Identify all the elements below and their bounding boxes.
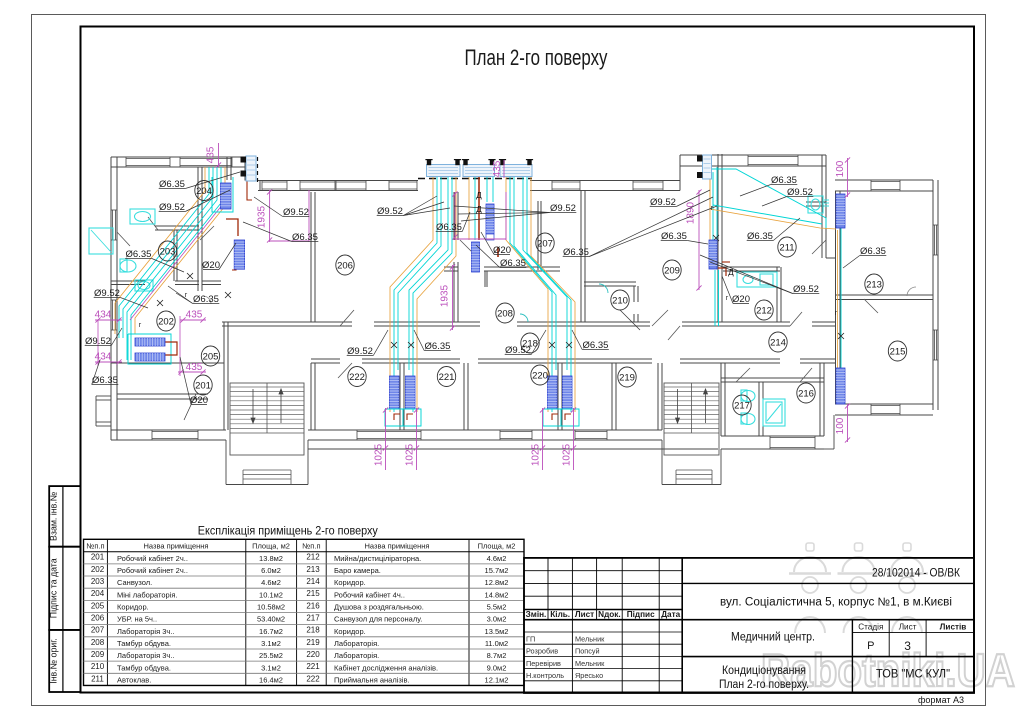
svg-text:13.8м2: 13.8м2 (259, 554, 283, 563)
svg-text:208: 208 (497, 308, 513, 319)
svg-text:Кондиціонування: Кондиціонування (722, 665, 806, 677)
svg-text:202: 202 (91, 565, 105, 574)
svg-text:Дата: Дата (661, 610, 680, 619)
svg-text:13.5м2: 13.5м2 (485, 627, 509, 636)
svg-text:Коридор.: Коридор. (117, 603, 149, 612)
svg-text:Площа, м2: Площа, м2 (252, 542, 290, 551)
svg-text:Міні лабораторія.: Міні лабораторія. (117, 590, 178, 599)
svg-text:100: 100 (835, 417, 846, 434)
svg-text:28/102014 - ОВ/ВК: 28/102014 - ОВ/ВК (872, 566, 960, 580)
svg-text:вул. Соціалістична 5, корпус: вул. Соціалістична 5, корпус №1, в м.Киє… (720, 597, 952, 609)
svg-text:Коридор.: Коридор. (334, 627, 366, 636)
svg-text:16.7м2: 16.7м2 (259, 627, 283, 636)
svg-text:434: 434 (95, 310, 112, 321)
svg-text:216: 216 (798, 388, 814, 399)
svg-text:Підпис та дата: Підпис та дата (49, 558, 59, 618)
svg-text:Д: Д (476, 191, 482, 200)
svg-text:210: 210 (612, 295, 628, 306)
svg-text:Душова з роздягальньою.: Душова з роздягальньою. (334, 603, 424, 612)
svg-text:4.6м2: 4.6м2 (261, 578, 281, 587)
svg-text:формат А3: формат А3 (918, 695, 964, 705)
svg-text:№п.п: №п.п (302, 542, 320, 551)
svg-text:3: 3 (904, 639, 911, 653)
svg-text:Н.контроль: Н.контроль (526, 671, 564, 680)
svg-text:209: 209 (91, 650, 105, 659)
svg-text:214: 214 (306, 577, 320, 586)
svg-text:Кабінет дослідження аналізів.: Кабінет дослідження аналізів. (334, 663, 438, 672)
svg-text:План 2-го поверху.: План 2-го поверху. (719, 679, 809, 691)
svg-text:Експлікація приміщень 2-го пов: Експлікація приміщень 2-го поверху (198, 524, 378, 538)
svg-text:Мийна/дистиціліраторна.: Мийна/дистиціліраторна. (334, 554, 421, 563)
svg-text:222: 222 (306, 674, 320, 683)
svg-text:Санвузол.: Санвузол. (117, 578, 152, 587)
svg-text:216: 216 (306, 601, 320, 610)
svg-text:215: 215 (306, 589, 320, 598)
svg-text:10.1м2: 10.1м2 (259, 590, 283, 599)
svg-text:ГП: ГП (526, 635, 535, 644)
svg-text:435: 435 (206, 146, 217, 163)
svg-text:Площа, м2: Площа, м2 (478, 542, 516, 551)
svg-text:207: 207 (91, 626, 105, 635)
svg-text:206: 206 (91, 614, 105, 623)
svg-text:222: 222 (349, 372, 365, 383)
svg-text:Лабораторія 3ч..: Лабораторія 3ч.. (117, 627, 175, 636)
svg-text:г: г (139, 322, 142, 329)
svg-text:9.0м2: 9.0м2 (487, 663, 507, 672)
svg-text:12.1м2: 12.1м2 (485, 676, 509, 685)
svg-text:12.8м2: 12.8м2 (485, 578, 509, 587)
svg-text:11.0м2: 11.0м2 (485, 639, 508, 648)
svg-text:Лабораторія.: Лабораторія. (334, 639, 379, 648)
svg-text:213: 213 (866, 279, 882, 290)
svg-text:План 2-го поверху: План 2-го поверху (465, 45, 608, 70)
svg-text:435: 435 (186, 310, 203, 321)
svg-text:Д: Д (476, 205, 482, 214)
svg-text:201: 201 (91, 553, 105, 562)
svg-text:Мельник: Мельник (575, 659, 605, 668)
svg-text:203: 203 (160, 246, 176, 257)
svg-text:Лабораторія 3ч..: Лабораторія 3ч.. (117, 651, 175, 660)
svg-text:15.7м2: 15.7м2 (485, 566, 509, 575)
svg-text:201: 201 (195, 380, 211, 391)
svg-text:217: 217 (306, 614, 320, 623)
svg-text:212: 212 (306, 553, 320, 562)
svg-text:211: 211 (91, 674, 104, 683)
svg-text:Стадія: Стадія (858, 623, 883, 632)
svg-text:218: 218 (306, 626, 320, 635)
svg-text:Листів: Листів (940, 623, 967, 632)
svg-text:Робочий кабінет 2ч..: Робочий кабінет 2ч.. (117, 554, 188, 563)
svg-text:Назва приміщення: Назва приміщення (365, 542, 430, 551)
svg-text:Тамбур обдува.: Тамбур обдува. (117, 663, 171, 672)
svg-text:1935: 1935 (440, 284, 451, 307)
svg-text:221: 221 (439, 372, 455, 383)
svg-text:434: 434 (95, 352, 112, 363)
svg-text:1025: 1025 (562, 443, 573, 466)
svg-text:219: 219 (619, 372, 635, 383)
svg-text:1890: 1890 (686, 201, 697, 224)
svg-text:Перевірив: Перевірив (526, 659, 561, 668)
svg-text:8.7м2: 8.7м2 (487, 651, 507, 660)
svg-text:25.5м2: 25.5м2 (259, 651, 283, 660)
svg-text:3.1м2: 3.1м2 (261, 639, 281, 648)
svg-text:Кіль.: Кіль. (550, 610, 570, 619)
svg-text:4.6м2: 4.6м2 (487, 554, 507, 563)
svg-text:Попсуй: Попсуй (575, 647, 600, 656)
svg-text:Тамбур обдува.: Тамбур обдува. (117, 639, 171, 648)
svg-text:Приймальня аналізів.: Приймальня аналізів. (334, 676, 410, 685)
svg-text:Назва приміщення: Назва приміщення (144, 542, 209, 551)
svg-text:Взам. інв.№: Взам. інв.№ (49, 492, 59, 541)
svg-text:Підпис: Підпис (627, 610, 655, 619)
svg-text:Д: Д (728, 268, 734, 277)
svg-text:204: 204 (196, 186, 212, 197)
svg-text:16.4м2: 16.4м2 (259, 676, 283, 685)
svg-text:6.0м2: 6.0м2 (261, 566, 281, 575)
svg-text:Nдок.: Nдок. (598, 610, 620, 619)
svg-text:214: 214 (770, 337, 786, 348)
svg-text:Розробив: Розробив (526, 647, 558, 656)
svg-text:г: г (835, 310, 838, 317)
svg-text:217: 217 (734, 400, 750, 411)
svg-text:207: 207 (537, 238, 553, 249)
svg-text:Лабораторія.: Лабораторія. (334, 651, 379, 660)
svg-text:Робочий кабінет 4ч..: Робочий кабінет 4ч.. (334, 590, 405, 599)
svg-text:1025: 1025 (374, 443, 385, 466)
svg-text:209: 209 (664, 265, 680, 276)
svg-text:Автоклав.: Автоклав. (117, 676, 151, 685)
svg-text:Змін.: Змін. (526, 610, 547, 619)
svg-text:220: 220 (306, 650, 320, 659)
svg-text:219: 219 (306, 638, 320, 647)
svg-text:204: 204 (91, 589, 105, 598)
svg-text:14.8м2: 14.8м2 (485, 590, 509, 599)
svg-text:Лист: Лист (899, 623, 917, 632)
svg-text:1935: 1935 (257, 205, 268, 228)
svg-text:435: 435 (186, 362, 203, 373)
svg-text:206: 206 (337, 260, 353, 271)
svg-text:100: 100 (835, 160, 846, 177)
svg-text:215: 215 (890, 346, 906, 357)
svg-text:Коридор.: Коридор. (334, 578, 366, 587)
svg-text:208: 208 (91, 638, 105, 647)
svg-text:3.0м2: 3.0м2 (487, 615, 507, 624)
svg-text:Інв.№ ориг.: Інв.№ ориг. (49, 638, 59, 684)
svg-text:Р: Р (867, 640, 874, 652)
svg-text:1025: 1025 (531, 443, 542, 466)
svg-text:210: 210 (91, 662, 105, 671)
svg-text:53.40м2: 53.40м2 (257, 615, 285, 624)
svg-text:Мельник: Мельник (575, 635, 605, 644)
svg-text:1025: 1025 (405, 443, 416, 466)
svg-text:202: 202 (158, 316, 174, 327)
svg-text:221: 221 (306, 662, 320, 671)
svg-text:Санвузол для персоналу.: Санвузол для персоналу. (334, 615, 422, 624)
svg-text:435: 435 (492, 160, 503, 177)
svg-text:218: 218 (522, 338, 538, 349)
svg-text:205: 205 (91, 601, 105, 610)
svg-text:г: г (726, 295, 729, 302)
svg-text:213: 213 (306, 565, 320, 574)
svg-text:№п.п: №п.п (86, 542, 104, 551)
svg-text:Лист: Лист (575, 610, 594, 619)
svg-text:212: 212 (756, 305, 772, 316)
svg-text:Медичний центр.: Медичний центр. (731, 630, 815, 644)
svg-text:Яресько: Яресько (575, 671, 603, 680)
svg-text:3.1м2: 3.1м2 (261, 663, 281, 672)
svg-text:203: 203 (91, 577, 105, 586)
svg-text:205: 205 (203, 351, 219, 362)
svg-text:Робочий кабінет 2ч..: Робочий кабінет 2ч.. (117, 566, 188, 575)
svg-text:5.5м2: 5.5м2 (487, 603, 507, 612)
svg-text:220: 220 (532, 370, 548, 381)
svg-text:УБР. на 5ч..: УБР. на 5ч.. (117, 615, 157, 624)
svg-text:10.58м2: 10.58м2 (257, 603, 285, 612)
svg-text:211: 211 (779, 242, 794, 253)
svg-text:Баро камера.: Баро камера. (334, 566, 381, 575)
svg-text:ТОВ "МС КУЛ": ТОВ "МС КУЛ" (876, 667, 950, 681)
